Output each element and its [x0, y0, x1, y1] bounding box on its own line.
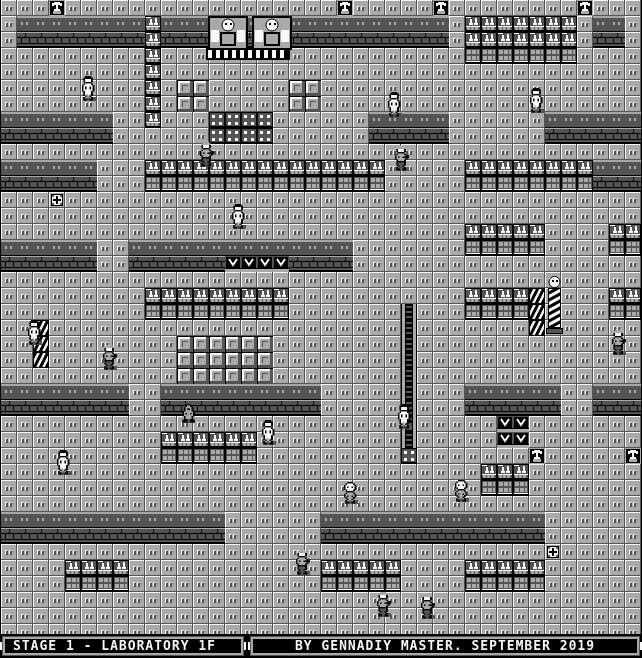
credits-label: BY GENNADIY MASTER. SEPTEMBER 2019: [295, 638, 595, 654]
rivet-icon: [244, 642, 246, 650]
stage-info-box: STAGE 1 - LABORATORY 1F: [3, 637, 243, 655]
stage-label: STAGE 1 - LABORATORY 1F: [13, 638, 216, 654]
game-screen: STAGE 1 - LABORATORY 1F BY GENNADIY MAST…: [0, 0, 642, 658]
status-bar: STAGE 1 - LABORATORY 1F BY GENNADIY MAST…: [0, 634, 642, 658]
rivet-icon: [248, 642, 250, 650]
credits-box: BY GENNADIY MASTER. SEPTEMBER 2019: [251, 637, 639, 655]
game-map-canvas[interactable]: [0, 0, 642, 634]
rivet-icon: [0, 642, 2, 650]
